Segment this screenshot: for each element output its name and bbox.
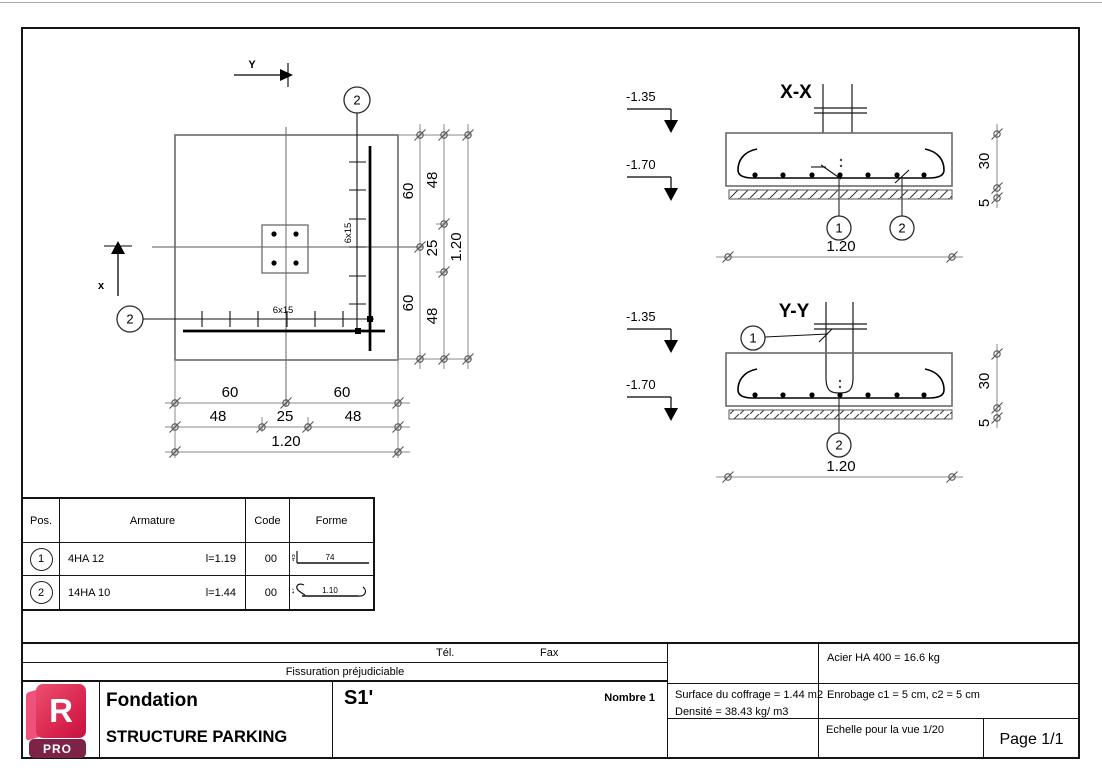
fissuration-note: Fissuration préjudiciable: [22, 666, 668, 678]
bar-designation: 14HA 10: [68, 587, 110, 599]
level-value: -1.70: [626, 157, 656, 172]
dim-right-60-bottom: 60: [400, 295, 417, 312]
column-break-yy: [814, 324, 867, 329]
bar-node-dot: [367, 316, 373, 322]
density-value: Densité = 38.43 kg/ m3: [675, 706, 788, 718]
project-title: STRUCTURE PARKING: [106, 728, 287, 747]
right-row-divider-1: [667, 683, 1079, 684]
table-row-armature: 14HA 10 l=1.44: [60, 576, 246, 609]
section-yy-bubble-2-number: 2: [835, 438, 842, 453]
column-bar-u-yy: [826, 302, 853, 393]
dim-bottom-60-left: 60: [222, 384, 239, 401]
dim-bottom-48-left: 48: [210, 408, 227, 425]
position-bubble: 1: [30, 548, 53, 571]
element-type-title: Fondation: [106, 690, 198, 712]
lean-concrete-hatch-xx: [729, 190, 952, 199]
steel-weight-value: Acier HA 400 = 16.6 kg: [827, 652, 940, 664]
bar-shape-sketch: 45 74: [292, 546, 372, 572]
logo-pro-label: PRO: [43, 742, 72, 756]
drawing-sheet-page: Y x 2: [0, 0, 1102, 783]
dim-bottom-25: 25: [277, 408, 294, 425]
cover-value: Enrobage c1 = 5 cm, c2 = 5 cm: [827, 689, 980, 701]
dim-bottom-total: 1.20: [271, 433, 300, 450]
vertical-divider-left: [667, 642, 668, 758]
table-row-armature: 4HA 12 l=1.19: [60, 543, 246, 576]
logo-cell-divider: [99, 680, 100, 758]
bar-dots-yy: [752, 392, 926, 397]
quantity-label: Nombre 1: [555, 692, 655, 704]
element-name: S1': [344, 687, 373, 710]
dim-lean-yy: 5: [976, 419, 993, 427]
leader-bubble1-yy: [765, 334, 828, 337]
level-marker-170: -1.70: [626, 377, 678, 421]
level-marker-135: -1.35: [626, 89, 678, 133]
table-row-code: 00: [246, 543, 290, 576]
fissuration-divider: [22, 680, 668, 682]
axis-x-label: x: [98, 280, 105, 292]
dim-right-total: 1.20: [448, 232, 465, 261]
table-row-code: 00: [246, 576, 290, 609]
shape-main-length: 1.10: [322, 586, 338, 595]
logo-letter: R: [49, 692, 73, 730]
col-header-pos: Pos.: [23, 499, 60, 543]
column-outline-plan: [262, 225, 308, 273]
level-marker-170: -1.70: [626, 157, 678, 201]
bar-end-dot: [840, 165, 842, 167]
dim-depth-yy: 30: [976, 373, 993, 390]
spacing-label-vertical: 6x15: [343, 223, 354, 244]
formwork-area-value: Surface du coffrage = 1.44 m2: [675, 689, 823, 701]
plan-view: Y x 2: [98, 59, 474, 458]
section-yy-bubble-1-number: 1: [749, 331, 756, 346]
level-value: -1.70: [626, 377, 656, 392]
element-cell-divider: [332, 680, 333, 758]
table-row-pos: 2: [23, 576, 60, 609]
bar-length: l=1.44: [206, 587, 236, 599]
logo-cube-front: R: [36, 684, 86, 738]
section-xx: X-X -1.35 -1.70: [626, 82, 1003, 263]
col-header-code: Code: [246, 499, 290, 543]
spacing-label-horizontal: 6x15: [273, 305, 294, 316]
shape-end-length: 45: [292, 554, 297, 561]
dim-lean-xx: 5: [976, 199, 993, 207]
level-value: -1.35: [626, 89, 656, 104]
axis-y-arrow-icon: Y: [234, 59, 293, 87]
axis-x-arrow-icon: x: [98, 241, 132, 296]
plan-bubble-left-number: 2: [126, 312, 133, 327]
dim-right-48-top: 48: [424, 172, 441, 189]
dim-right-48-bottom: 48: [424, 308, 441, 325]
bar-length: l=1.19: [206, 553, 236, 565]
dim-right-25: 25: [424, 240, 441, 257]
shape-end-length: 17: [292, 586, 296, 593]
page-number: Page 1/1: [983, 731, 1080, 749]
dim-right-60-top: 60: [400, 183, 417, 200]
section-yy: Y-Y -1.35 -1.70 1: [626, 301, 1003, 483]
table-row-pos: 1: [23, 543, 60, 576]
section-xx-bubble-1-number: 1: [835, 221, 842, 236]
rebar-schedule-table: Pos. Armature Code Forme 1 4HA 12 l=1.19…: [21, 497, 375, 611]
bar-end-dot: [839, 380, 841, 382]
level-marker-135: -1.35: [626, 309, 678, 353]
dim-bottom-60-right: 60: [334, 384, 351, 401]
dim-width-xx: 1.20: [826, 238, 855, 255]
scale-label: Echelle pour la vue 1/20: [826, 724, 944, 736]
dim-bottom-48-right: 48: [345, 408, 362, 425]
section-yy-title: Y-Y: [779, 301, 810, 322]
bar-shape-sketch: 17 1.10: [292, 580, 372, 606]
bar-designation: 4HA 12: [68, 553, 104, 565]
robot-pro-logo: R PRO: [24, 682, 98, 758]
dim-depth-xx: 30: [976, 153, 993, 170]
right-row-divider-2: [667, 718, 1079, 719]
titleblock-top-line: [22, 642, 1079, 644]
fax-label: Fax: [540, 647, 558, 659]
table-row-forme: 45 74: [290, 543, 373, 576]
column-bar-dots: [271, 231, 298, 265]
lean-concrete-hatch-yy: [729, 410, 952, 419]
bar-end-dot: [840, 159, 842, 161]
tel-fax-divider: [22, 662, 668, 663]
dim-width-yy: 1.20: [826, 458, 855, 475]
section-xx-title: X-X: [780, 82, 812, 103]
col-header-forme: Forme: [290, 499, 373, 543]
plan-bubble-top-number: 2: [353, 93, 360, 108]
logo-pro-badge: PRO: [29, 739, 86, 758]
level-value: -1.35: [626, 309, 656, 324]
table-row-forme: 17 1.10: [290, 576, 373, 609]
col-header-armature: Armature: [60, 499, 246, 543]
tel-label: Tél.: [436, 647, 454, 659]
position-bubble: 2: [30, 581, 53, 604]
bar-node-dot: [355, 328, 361, 334]
section-xx-bubble-2-number: 2: [898, 221, 905, 236]
shape-main-length: 74: [325, 553, 334, 562]
axis-y-label: Y: [248, 59, 256, 71]
bar-end-dot: [839, 386, 841, 388]
